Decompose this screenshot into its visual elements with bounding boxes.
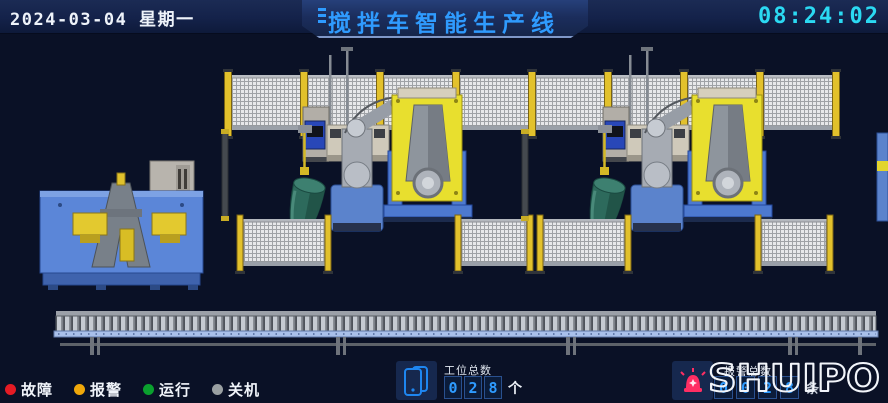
header-bar: 2024-03-04 星期一 搅拌车智能生产线 08:24:02 (0, 0, 888, 34)
production-line-scene: KUKA (0, 33, 888, 355)
status-legend: 故障 报警 运行 关机 (5, 379, 260, 400)
brand-logo-text: SHUIPO (708, 357, 880, 400)
clock-display: 08:24:02 (758, 4, 880, 29)
fixture-machine (40, 173, 203, 290)
legend-item-fault: 故障 (5, 379, 53, 400)
legend-item-off: 关机 (212, 379, 260, 400)
station-counter-unit: 个 (508, 378, 522, 398)
legend-item-alarm: 报警 (74, 379, 122, 400)
legend-label: 运行 (159, 379, 191, 400)
status-bar: 故障 报警 运行 关机 工位总数 0 (0, 355, 888, 403)
digit: 8 (484, 376, 502, 399)
running-dot-icon (143, 384, 154, 395)
siren-icon (679, 367, 707, 395)
station-counter-value: 0 2 8 个 (444, 376, 522, 399)
legend-label: 关机 (228, 379, 260, 400)
digit: 2 (464, 376, 482, 399)
roller-conveyor (54, 311, 878, 355)
digit: 0 (444, 376, 462, 399)
legend-label: 故障 (21, 379, 53, 400)
fault-dot-icon (5, 384, 16, 395)
off-dot-icon (212, 384, 223, 395)
alarm-dot-icon (74, 384, 85, 395)
device-icon (404, 366, 430, 396)
brand-logo: SHUIPO (704, 356, 884, 402)
station-counter-tile (396, 361, 437, 400)
legend-label: 报警 (90, 379, 122, 400)
legend-item-running: 运行 (143, 379, 191, 400)
right-edge-machine (877, 133, 888, 221)
dashboard: 2024-03-04 星期一 搅拌车智能生产线 08:24:02 (0, 0, 888, 403)
left-station (40, 161, 203, 290)
